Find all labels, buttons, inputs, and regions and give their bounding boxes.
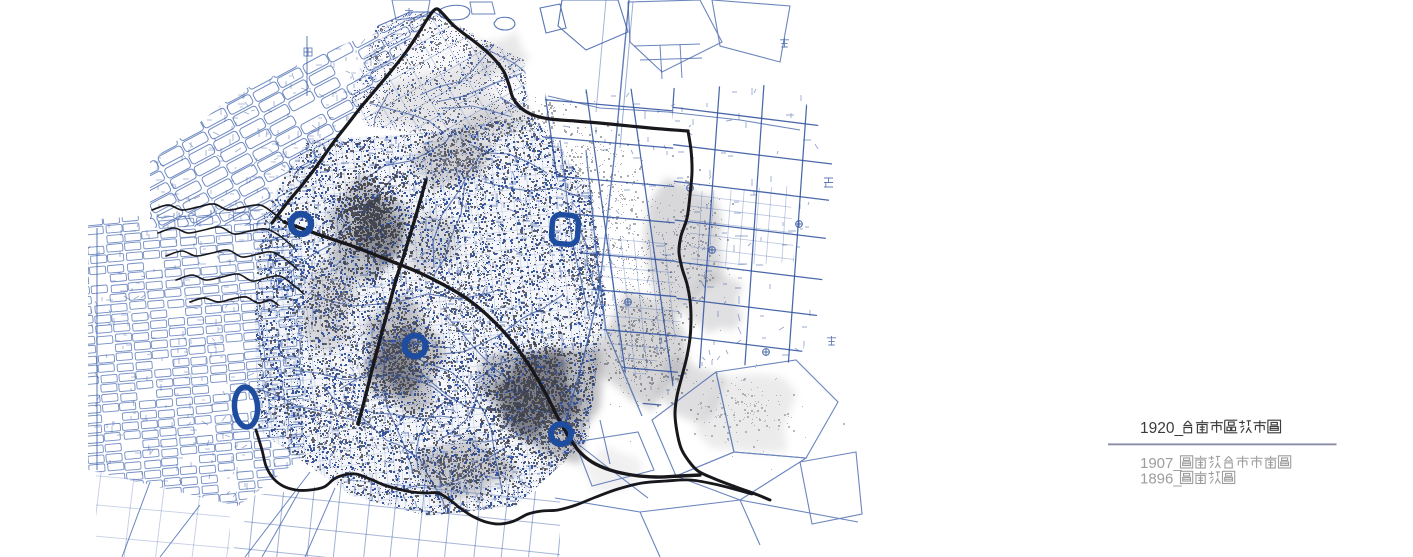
svg-text:1920_: 1920_ bbox=[1140, 420, 1183, 437]
svg-text:1896_: 1896_ bbox=[1140, 471, 1182, 488]
svg-text:1907_: 1907_ bbox=[1140, 455, 1182, 472]
